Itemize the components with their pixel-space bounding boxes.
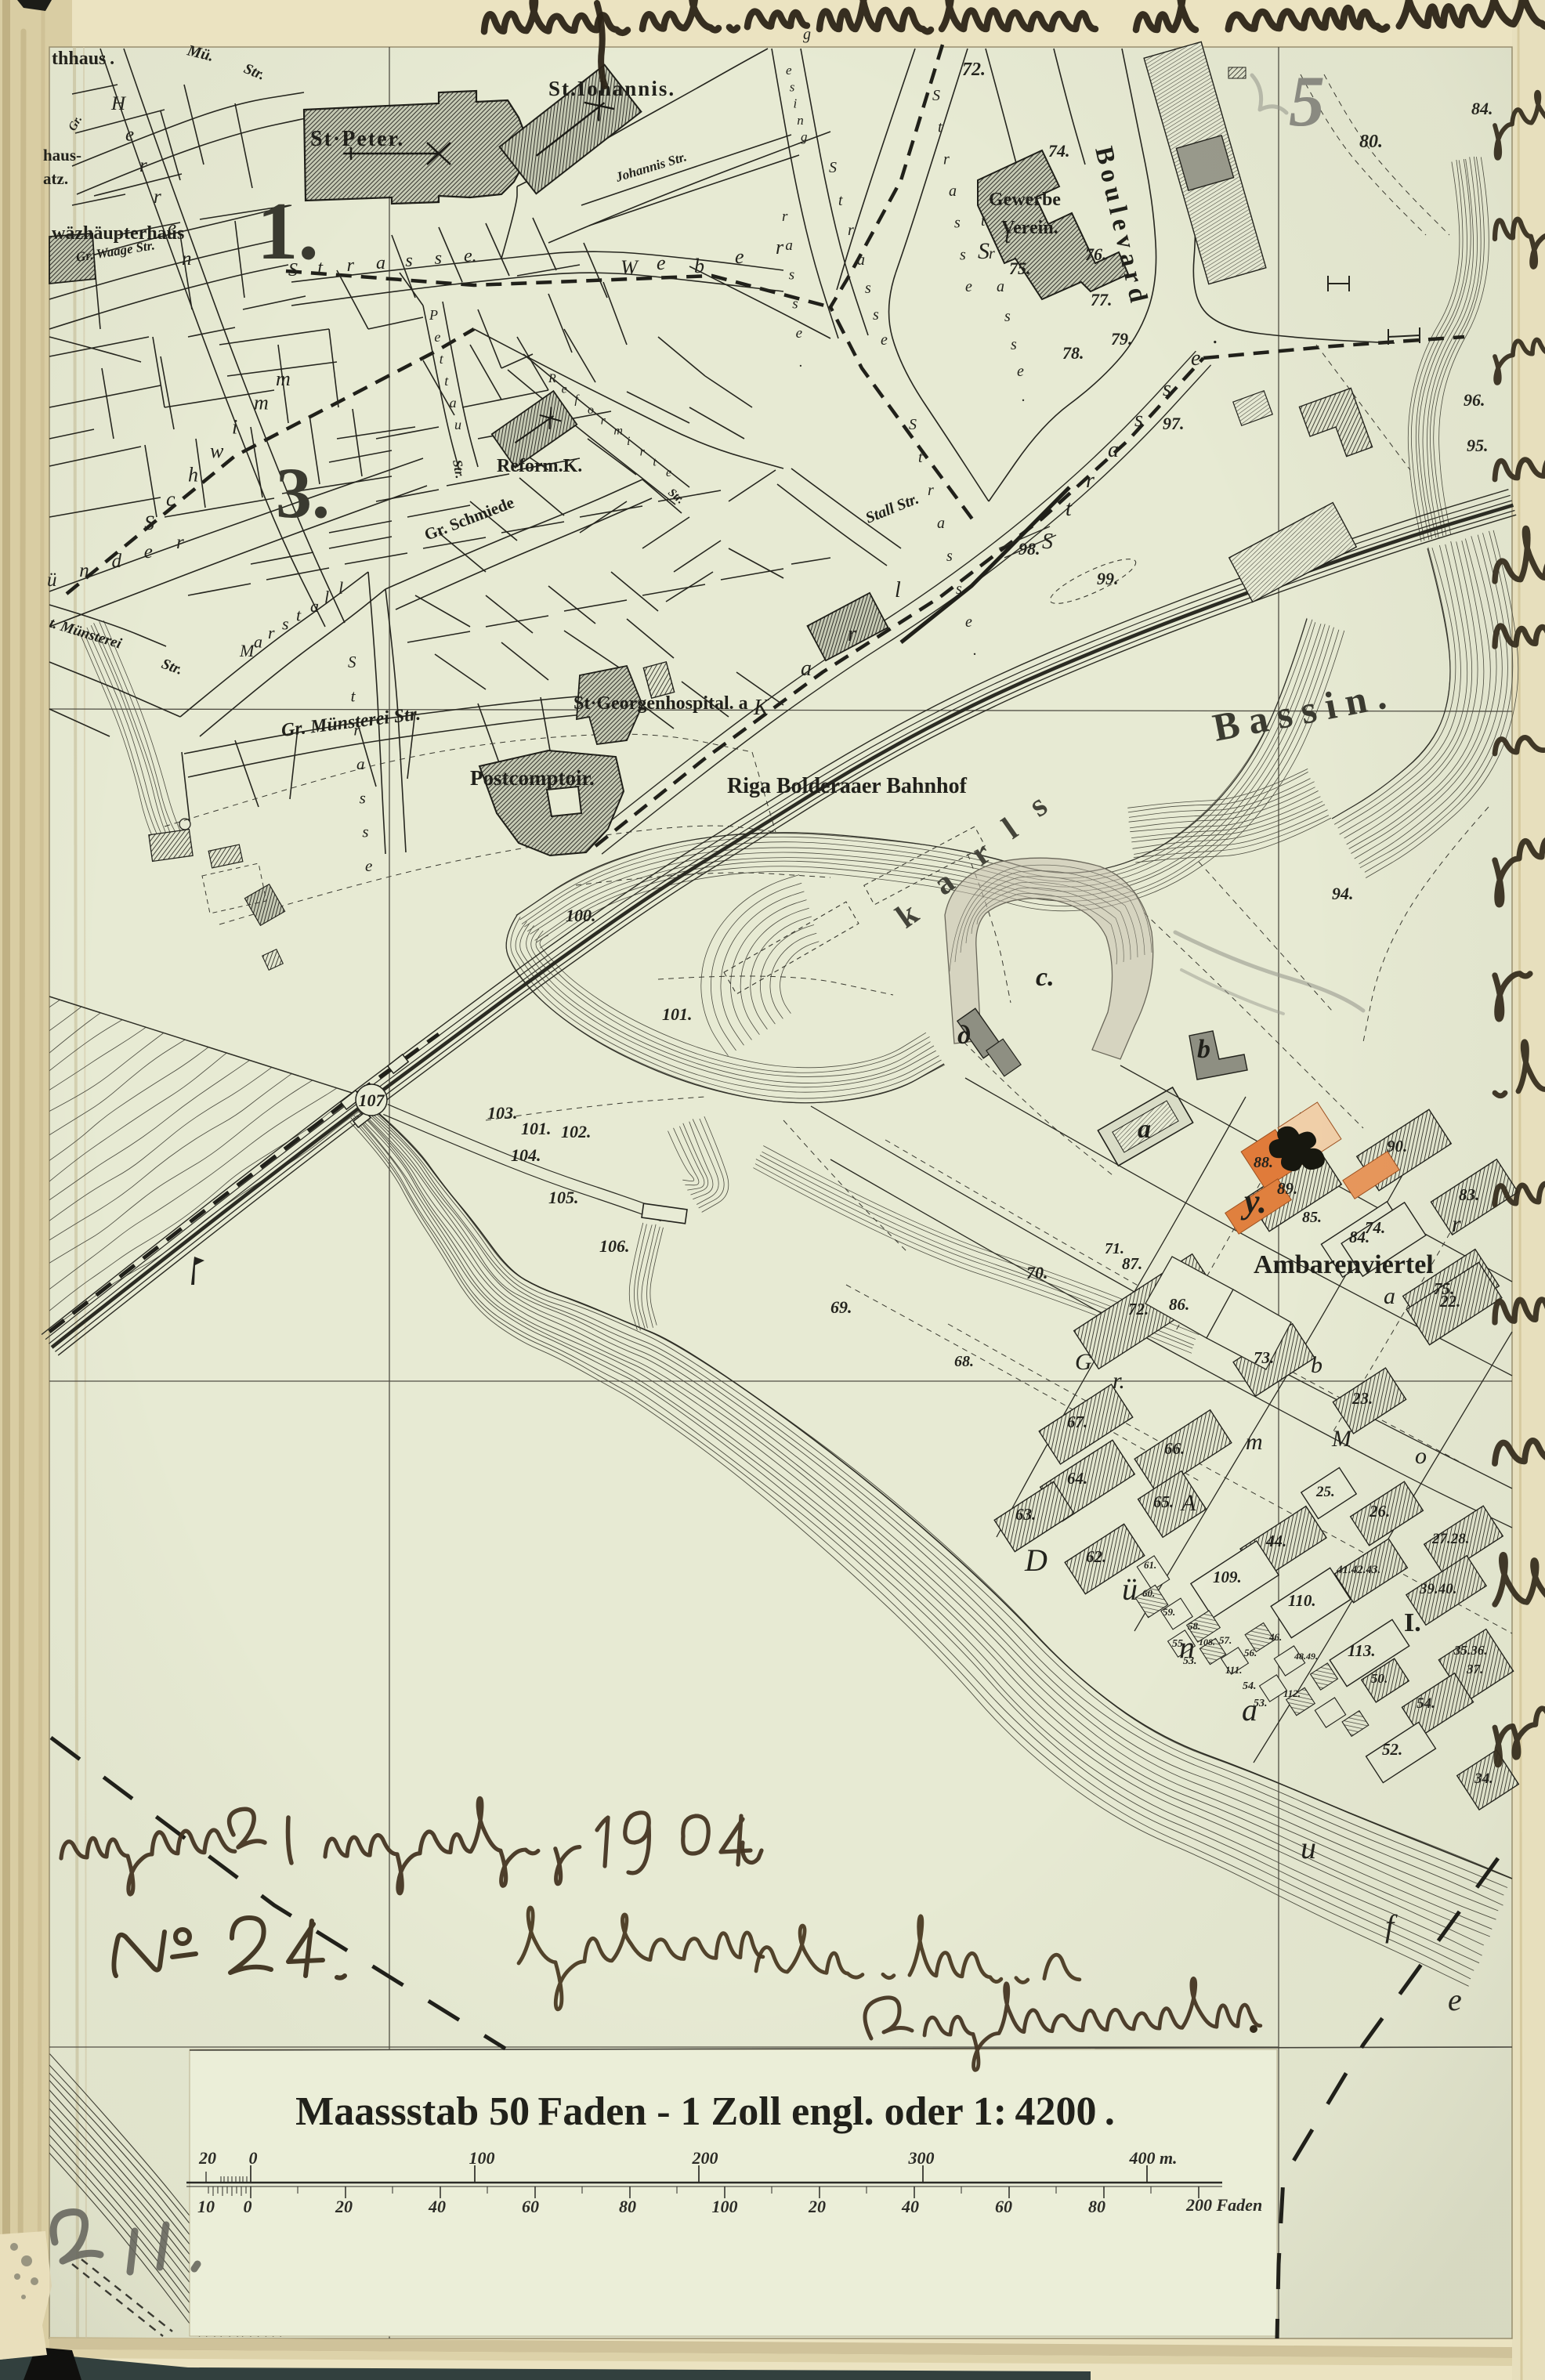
svg-text:400 m.: 400 m. xyxy=(1128,2148,1177,2168)
svg-text:20: 20 xyxy=(335,2197,353,2216)
svg-text:40: 40 xyxy=(901,2197,919,2216)
svg-text:0: 0 xyxy=(244,2197,252,2216)
svg-text:80: 80 xyxy=(1088,2197,1105,2216)
svg-text:Maassstab 50 Faden - 1 Zoll en: Maassstab 50 Faden - 1 Zoll engl. oder 1… xyxy=(295,2089,1115,2134)
svg-text:300: 300 xyxy=(908,2148,935,2168)
svg-text:20: 20 xyxy=(808,2197,826,2216)
svg-text:100: 100 xyxy=(469,2148,495,2168)
svg-text:0: 0 xyxy=(249,2148,258,2168)
svg-text:100: 100 xyxy=(712,2197,738,2216)
svg-text:60: 60 xyxy=(995,2197,1012,2216)
svg-text:200 Faden: 200 Faden xyxy=(1185,2195,1262,2215)
svg-text:20: 20 xyxy=(198,2148,216,2168)
svg-text:80: 80 xyxy=(619,2197,636,2216)
svg-text:10: 10 xyxy=(197,2197,215,2216)
svg-text:200: 200 xyxy=(692,2148,718,2168)
svg-text:40: 40 xyxy=(428,2197,446,2216)
svg-text:60: 60 xyxy=(522,2197,539,2216)
